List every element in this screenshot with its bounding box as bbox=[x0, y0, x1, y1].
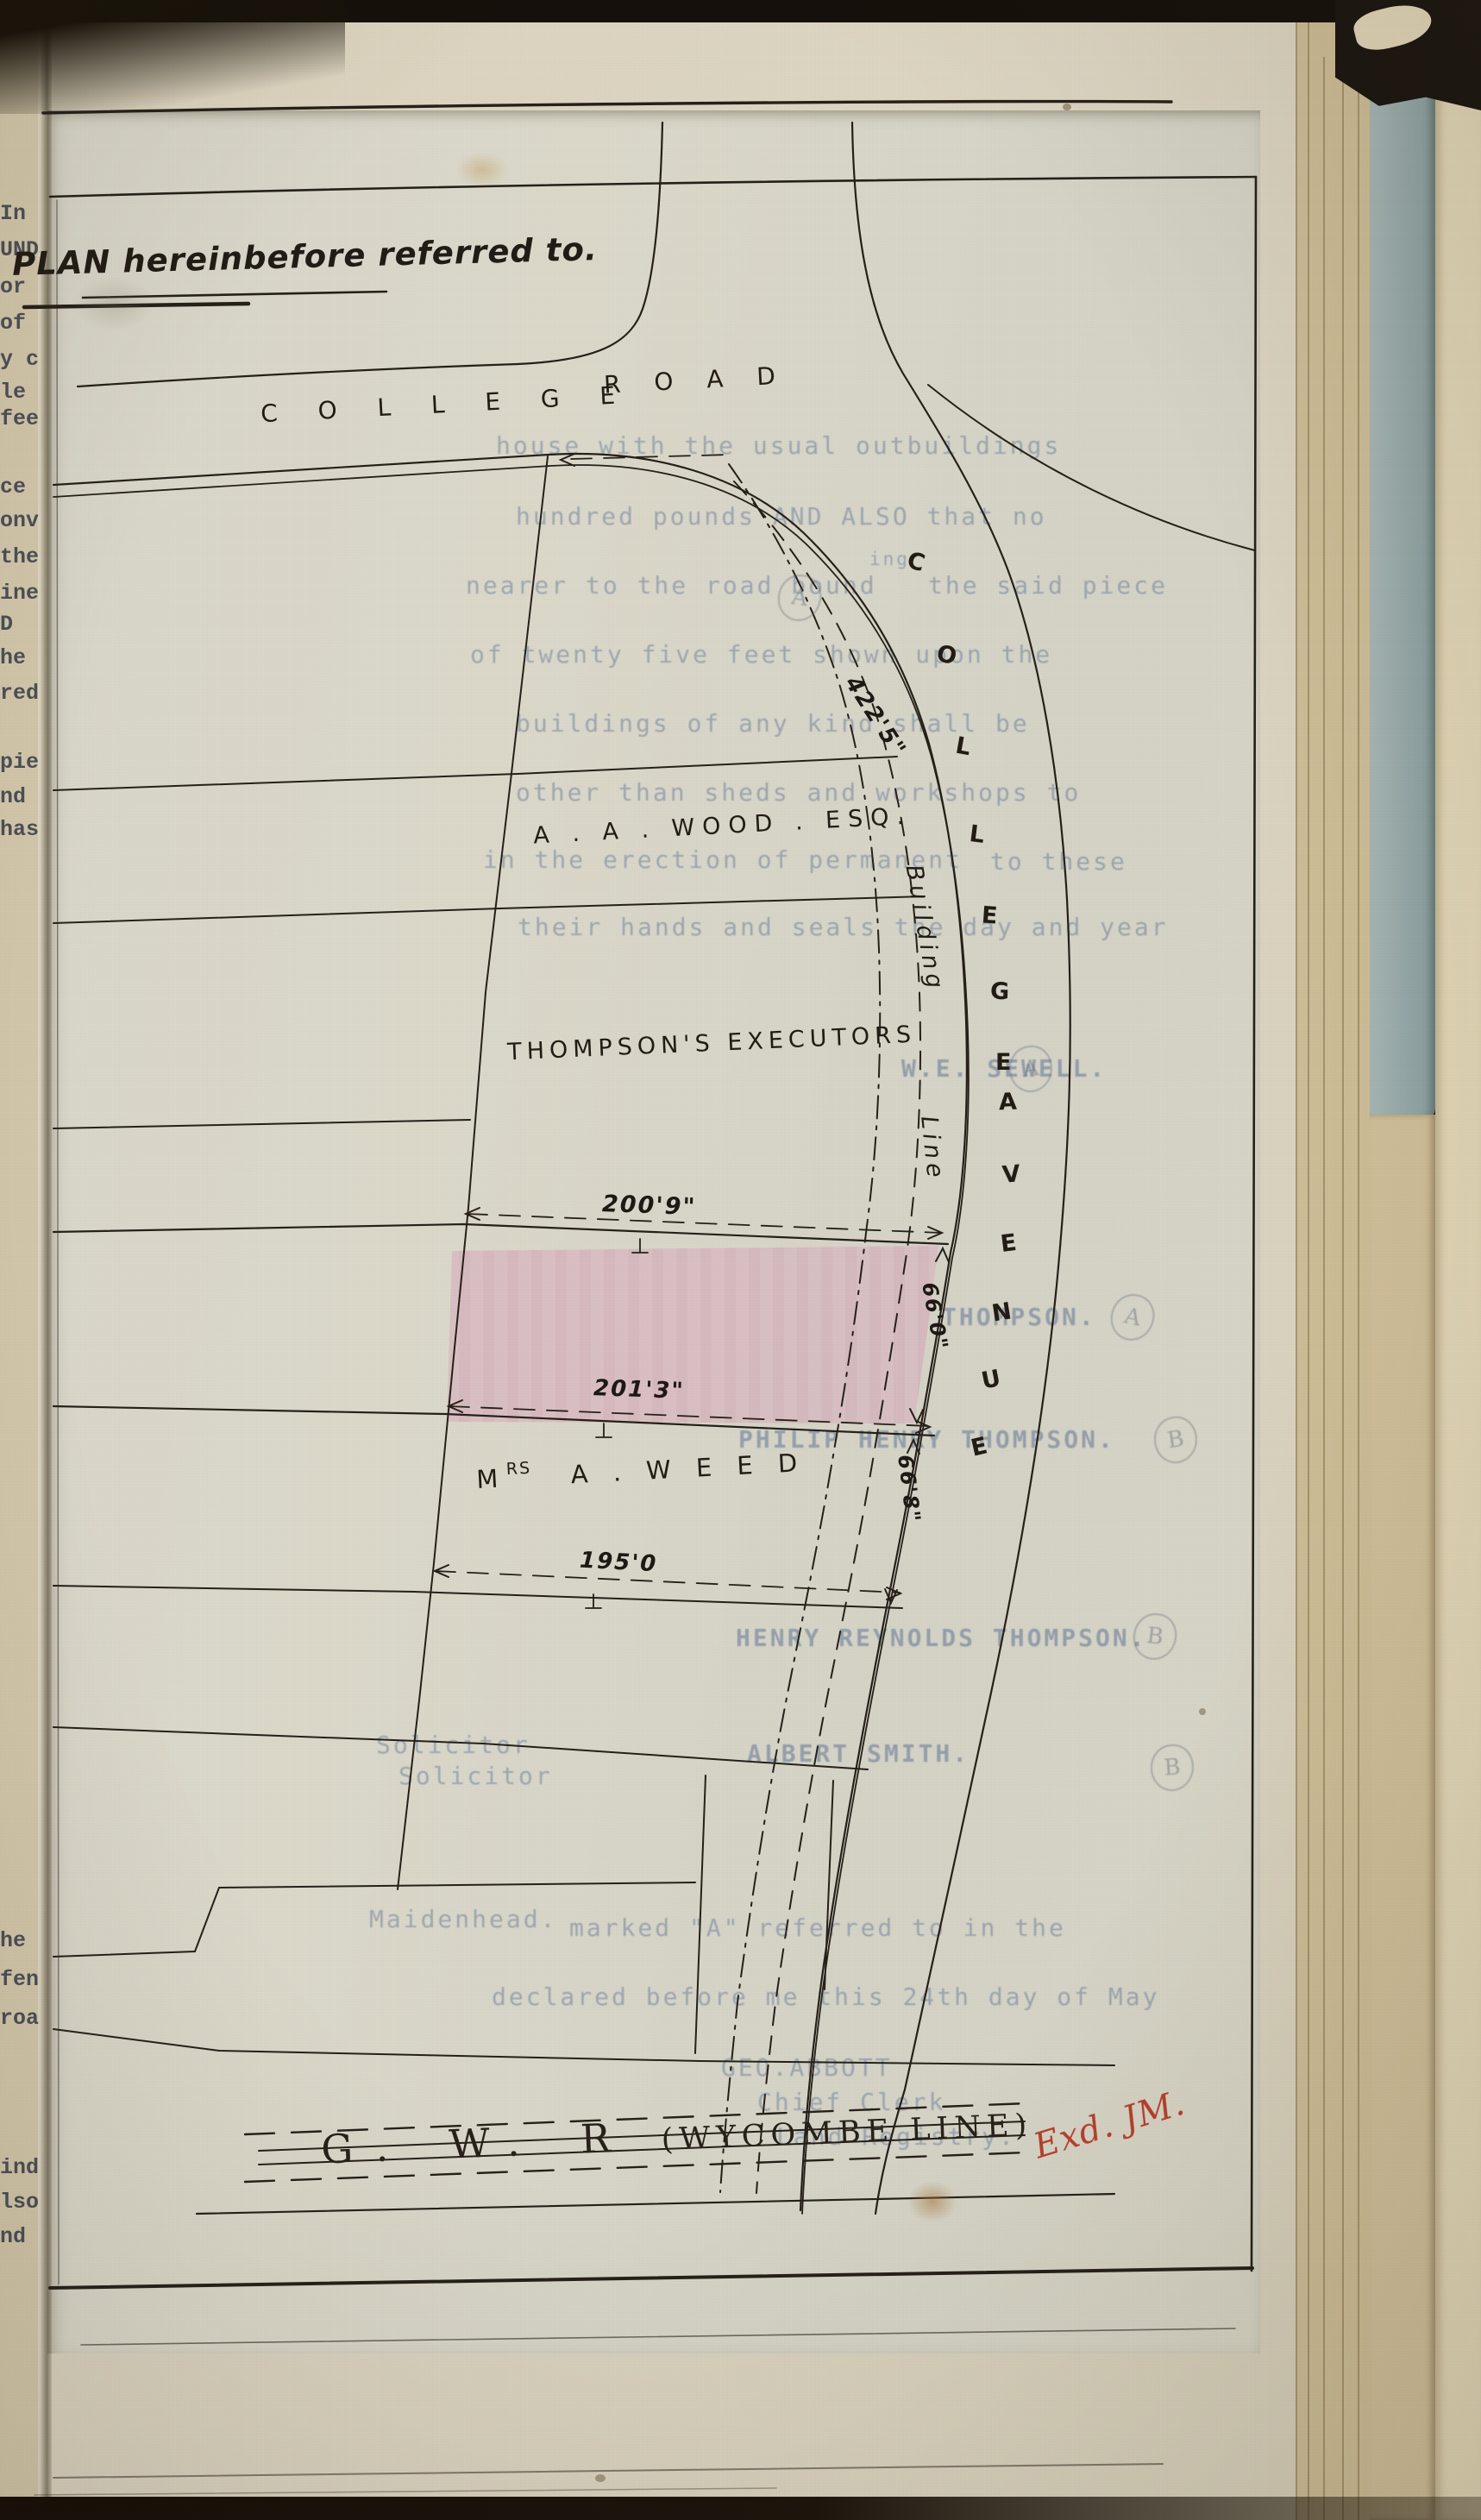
arrowhead bbox=[561, 454, 574, 466]
page-bottom-edge bbox=[35, 2488, 776, 2495]
dim-leader-195-0 bbox=[435, 1571, 900, 1593]
avenue-letter: A bbox=[998, 1089, 1017, 1116]
avenue-letter: N bbox=[990, 1298, 1013, 1327]
avenue-letter: E bbox=[981, 902, 999, 929]
weed-prefix: M bbox=[475, 1463, 507, 1494]
frame-bottom bbox=[50, 2268, 1252, 2288]
pencil-letter: A bbox=[790, 584, 810, 612]
title-underline-2 bbox=[24, 304, 248, 307]
dim-195-0: 195'0 bbox=[579, 1548, 658, 1578]
highlighted-plot bbox=[447, 1246, 938, 1423]
avenue-letter: V bbox=[1001, 1160, 1022, 1189]
dim-200-9: 200'9" bbox=[601, 1191, 696, 1221]
page-bottom-edge bbox=[53, 2464, 1163, 2478]
dim-leader-frontage bbox=[571, 455, 729, 459]
stepped-boundary bbox=[53, 1882, 695, 1957]
plot-division bbox=[53, 896, 925, 923]
road-branch bbox=[928, 385, 1255, 550]
plot-side-line bbox=[825, 1781, 833, 1989]
pencil-letter: A bbox=[1122, 1303, 1144, 1331]
dim-leader-200-9 bbox=[467, 1214, 941, 1233]
sheet-fold-line bbox=[81, 2328, 1235, 2345]
boundary-above-railway bbox=[53, 2029, 1114, 2065]
plot-side-line bbox=[695, 1775, 706, 2053]
weed-plot-bottom bbox=[53, 1586, 902, 1608]
railway-lower-line bbox=[197, 2194, 1114, 2214]
plot-division bbox=[53, 757, 897, 790]
pencil-letter: B bbox=[1165, 1426, 1186, 1455]
plots-west-boundary bbox=[398, 456, 548, 1889]
title-underline bbox=[83, 292, 386, 298]
pencil-letter: B bbox=[1163, 1754, 1181, 1781]
plot-division bbox=[53, 1727, 868, 1769]
avenue-letter: G bbox=[989, 978, 1009, 1006]
dim-201-3: 201'3" bbox=[593, 1375, 686, 1405]
avenue-letter: E bbox=[999, 1229, 1018, 1258]
pencil-letter: A bbox=[1021, 1055, 1040, 1083]
sheet-top-edge bbox=[43, 102, 1171, 113]
dim-tick bbox=[586, 1594, 601, 1608]
pencil-letter: B bbox=[1145, 1623, 1165, 1650]
frame-left bbox=[57, 200, 59, 2284]
college-avenue-east-edge bbox=[852, 123, 1070, 2214]
frame-right bbox=[1252, 177, 1256, 2271]
frame-top bbox=[50, 177, 1256, 197]
plot-division bbox=[53, 1120, 470, 1128]
dim-tick bbox=[596, 1423, 612, 1437]
weed-sup: RS bbox=[505, 1459, 531, 1480]
